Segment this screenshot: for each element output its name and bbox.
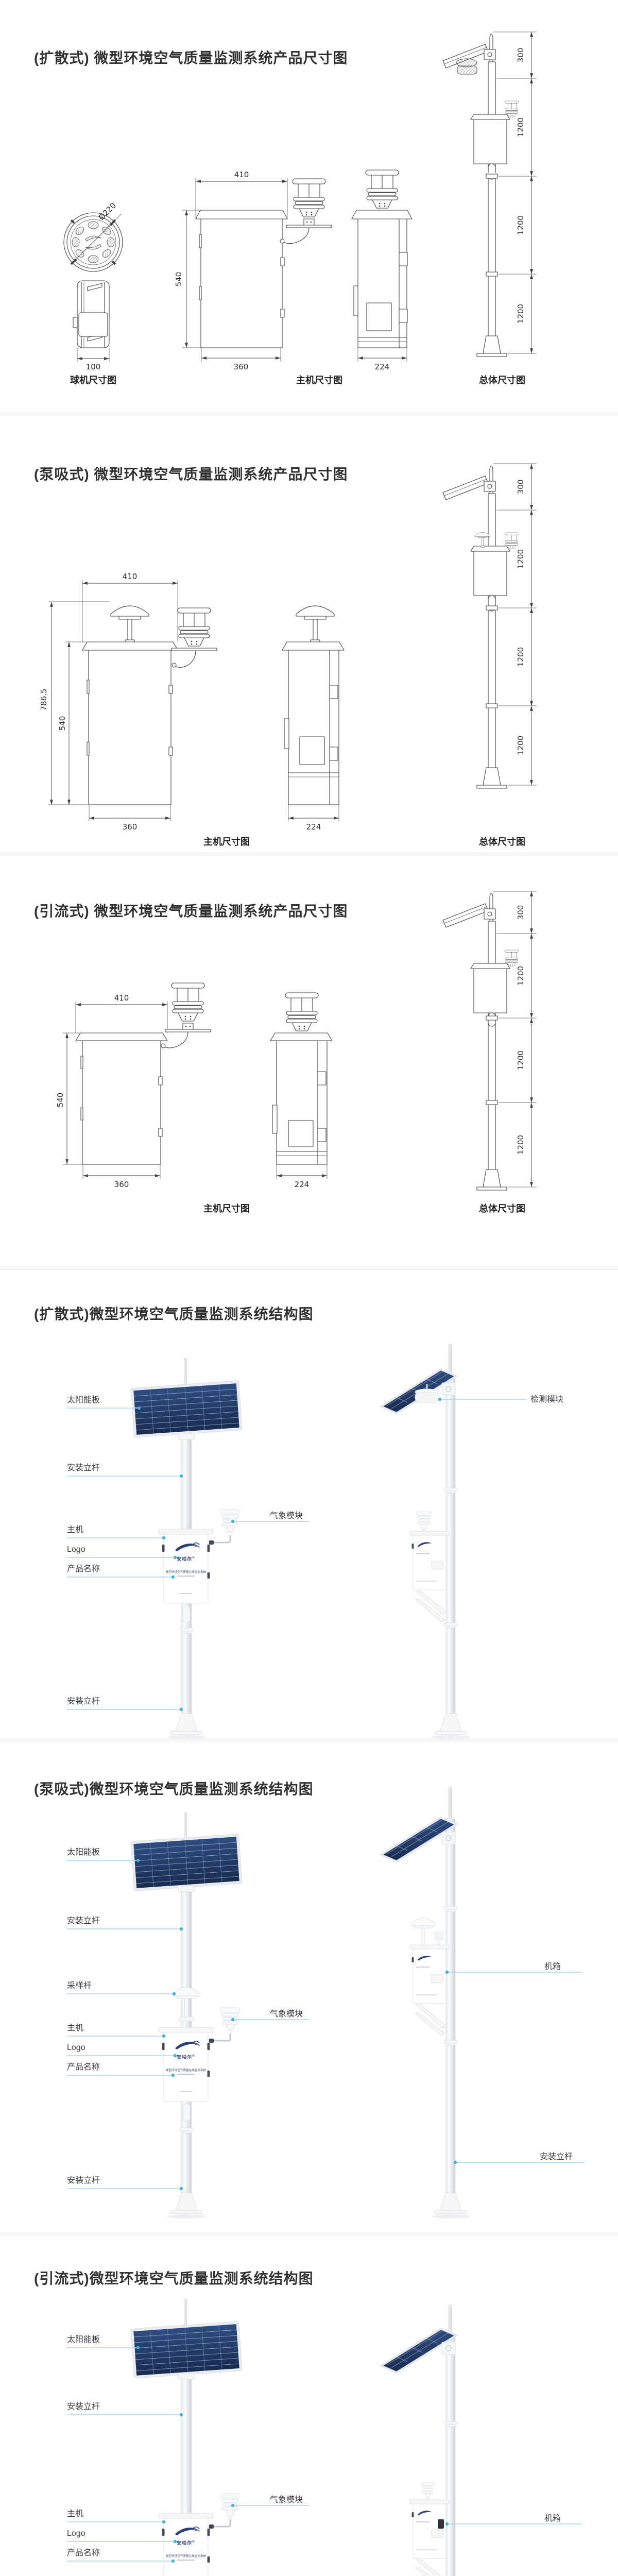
section-divider (0, 2232, 618, 2236)
overall-view: 300 1200 1200 1200 (443, 464, 537, 788)
host-side-width: 224 (306, 822, 321, 832)
overall-caption: 总体尺寸图 (479, 836, 525, 847)
label-solar-panel: 太阳能板 (67, 1848, 100, 1857)
right-station-render (381, 1787, 470, 2218)
label-logo: Logo (67, 1545, 85, 1554)
ball-width-label: 100 (86, 362, 101, 371)
label-pole-right: 安装立杆 (540, 2152, 573, 2161)
host-front-view: 410 786.5 540 360 (39, 572, 217, 832)
section-divider (0, 412, 618, 416)
ball-machine-top-view: Ø220 (64, 201, 123, 272)
host-front-view: 410 540 360 (174, 170, 332, 371)
section-structure-pump: (泵吸式)微型环境空气质量监测系统结构图 太阳能板 安装立杆 采样杆 (34, 1781, 585, 2218)
host-height: 540 (56, 1093, 65, 1108)
page-canvas: 安柏尔® 微型环境空气质量在线监测系统 (扩散式) 微型环境空气质量监测系统产品… (0, 0, 618, 2576)
host-caption: 主机尺寸图 (203, 1203, 250, 1214)
host-caption: 主机尺寸图 (203, 836, 250, 847)
section-divider (0, 852, 618, 856)
host-top-width: 410 (123, 572, 138, 581)
overall-seg3: 1200 (516, 215, 525, 235)
right-station-render (381, 2305, 470, 2576)
label-cabinet: 机箱 (544, 2514, 561, 2523)
overall-seg2: 1200 (516, 117, 525, 137)
callouts: 太阳能板 安装立杆 气象模块 主机 Logo 产品名称 安装立杆 检测模块 (67, 1395, 563, 1711)
label-weather-module: 气象模块 (270, 2495, 303, 2504)
right-station-render (381, 1344, 470, 1739)
overall-caption: 总体尺寸图 (479, 375, 525, 385)
section-structure-diffusion: (扩散式)微型环境空气质量监测系统结构图 太阳能板 安装立杆 气象模块 (34, 1306, 563, 1739)
host-front-view: 410 540 360 (56, 983, 211, 1189)
section6-title: (引流式)微型环境空气质量监测系统结构图 (34, 2270, 314, 2286)
overall-seg3: 1200 (516, 647, 525, 667)
section-dims-diffusion: (扩散式) 微型环境空气质量监测系统产品尺寸图 Ø220 (34, 32, 537, 385)
overall-seg4: 1200 (516, 304, 525, 324)
overall-view: 300 1200 1200 1200 (443, 891, 537, 1190)
overall-seg1: 300 (516, 48, 525, 63)
label-host: 主机 (67, 2509, 83, 2518)
section-dims-draft: (引流式) 微型环境空气质量监测系统产品尺寸图 410 540 360 (34, 891, 537, 1214)
label-logo: Logo (67, 2529, 85, 2538)
section-divider (0, 1266, 618, 1270)
host-front-width: 360 (123, 822, 138, 832)
host-total-height: 786.5 (39, 689, 48, 711)
host-side-width: 224 (375, 362, 390, 371)
host-side-width: 224 (295, 1180, 310, 1189)
section2-title: (泵吸式) 微型环境空气质量监测系统产品尺寸图 (34, 466, 348, 482)
overall-dim-chain: 300 1200 1200 1200 (493, 891, 537, 1187)
host-caption: 主机尺寸图 (296, 375, 342, 385)
page: 安柏尔® 微型环境空气质量在线监测系统 (扩散式) 微型环境空气质量监测系统产品… (0, 0, 618, 2576)
overall-seg4: 1200 (516, 1135, 525, 1155)
overall-seg1: 300 (516, 905, 525, 920)
section1-title: (扩散式) 微型环境空气质量监测系统产品尺寸图 (34, 49, 348, 66)
host-front-width: 360 (114, 1180, 129, 1189)
section-dims-pump: (泵吸式) 微型环境空气质量监测系统产品尺寸图 410 786.5 540 36… (34, 464, 537, 847)
host-height: 540 (58, 716, 67, 731)
host-top-width: 410 (114, 993, 129, 1003)
overall-dim-chain: 300 1200 1200 1200 (493, 464, 537, 785)
overall-dim-chain: 300 1200 1200 1200 (493, 32, 537, 353)
left-station-render (131, 2299, 242, 2576)
left-station-render (131, 1358, 242, 1739)
ball-diameter-label: Ø220 (97, 201, 118, 222)
host-height: 540 (174, 272, 183, 287)
label-host: 主机 (67, 1525, 83, 1534)
host-side-view: 224 (270, 993, 332, 1189)
label-cabinet: 机箱 (544, 1962, 561, 1971)
overall-seg2: 1200 (516, 966, 525, 986)
overall-seg3: 1200 (516, 1050, 525, 1070)
label-product-name: 产品名称 (67, 2548, 100, 2557)
overall-seg2: 1200 (516, 549, 525, 569)
section5-title: (泵吸式)微型环境空气质量监测系统结构图 (34, 1781, 314, 1797)
ball-caption: 球机尺寸图 (70, 375, 116, 385)
ball-machine-side-view: 100 (73, 281, 109, 371)
label-logo: Logo (67, 2043, 85, 2052)
overall-caption: 总体尺寸图 (479, 1203, 525, 1214)
label-pole-lower: 安装立杆 (67, 2176, 100, 2185)
label-solar-panel: 太阳能板 (67, 2335, 100, 2344)
overall-view: 300 1200 1200 1200 (443, 32, 537, 357)
label-product-name: 产品名称 (67, 1564, 100, 1573)
section-divider (0, 1738, 618, 1742)
host-side-view: 224 (352, 170, 412, 371)
overall-seg4: 1200 (516, 736, 525, 755)
callouts: 太阳能板 安装立杆 采样杆 气象模块 主机 Logo 产品名称 安装立杆 机箱 … (67, 1848, 585, 2190)
label-pole-upper: 安装立杆 (67, 1463, 100, 1472)
host-top-width: 410 (234, 170, 249, 179)
label-detect-module: 检测模块 (530, 1395, 563, 1404)
label-product-name: 产品名称 (67, 2062, 100, 2072)
left-station-render (131, 1812, 242, 2218)
label-weather-module: 气象模块 (270, 2009, 303, 2019)
section-structure-draft: (引流式)微型环境空气质量监测系统结构图 太阳能板 安装立杆 气象模块 (34, 2270, 585, 2576)
label-host: 主机 (67, 2023, 83, 2032)
label-pole-upper: 安装立杆 (67, 2402, 100, 2411)
label-pole-lower: 安装立杆 (67, 1697, 100, 1706)
section4-title: (扩散式)微型环境空气质量监测系统结构图 (34, 1306, 314, 1322)
host-front-width: 360 (234, 362, 249, 371)
label-sampler: 采样杆 (67, 1981, 92, 1990)
label-weather-module: 气象模块 (270, 1511, 303, 1520)
label-solar-panel: 太阳能板 (67, 1395, 100, 1404)
label-pole-upper: 安装立杆 (67, 1916, 100, 1925)
section3-title: (引流式) 微型环境空气质量监测系统产品尺寸图 (34, 903, 348, 919)
host-side-view: 224 (282, 606, 344, 832)
overall-seg1: 300 (516, 480, 525, 495)
